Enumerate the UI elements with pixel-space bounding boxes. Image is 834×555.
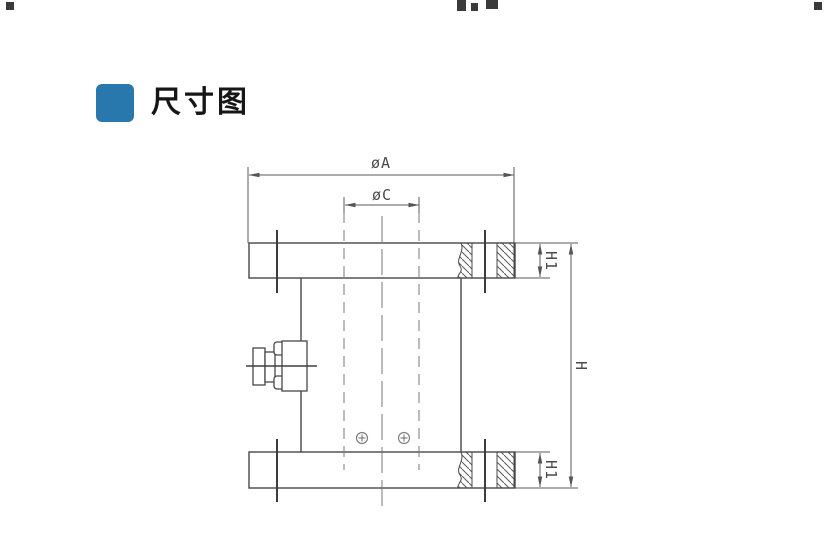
cable-connector [246,341,317,391]
top-flange-hatch-left [458,243,472,278]
dim-label-h1-bottom: H1 [542,460,560,480]
bottom-flange-hatch-left [458,452,472,488]
dimension-lines [248,167,578,488]
top-flange-hatch-right [497,243,514,278]
dim-label-dia-c: øC [372,186,392,204]
dim-label-h1-top: H1 [542,251,560,271]
dimension-drawing: øA øC H1 H1 H [0,0,834,555]
dim-label-h-total: H [572,361,590,371]
screw-symbols [357,433,410,444]
dimension-drawing-canvas [0,0,834,555]
dim-label-dia-a: øA [371,154,391,172]
page: 尺寸图 [0,0,834,555]
crop-artifacts [6,0,822,11]
bottom-flange-hatch-right [497,452,514,488]
